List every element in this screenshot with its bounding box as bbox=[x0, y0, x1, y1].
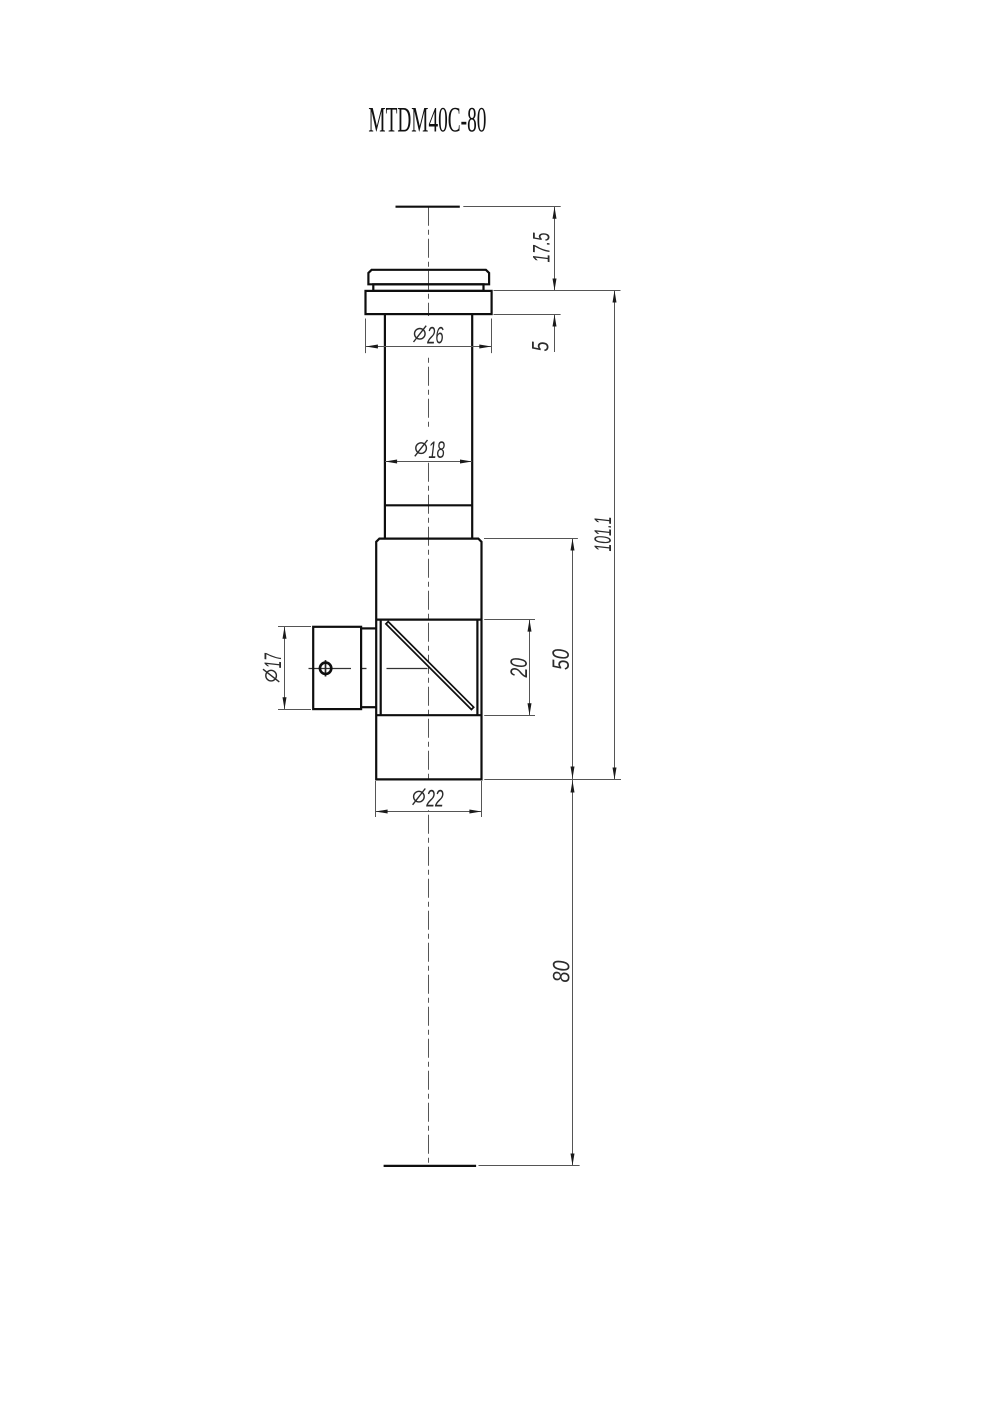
svg-text:17.5: 17.5 bbox=[529, 232, 556, 262]
svg-text:22: 22 bbox=[426, 786, 444, 813]
svg-text:26: 26 bbox=[426, 323, 443, 350]
svg-text:17: 17 bbox=[260, 653, 287, 669]
svg-text:80: 80 bbox=[549, 960, 576, 982]
svg-text:5: 5 bbox=[528, 341, 555, 351]
svg-text:20: 20 bbox=[506, 658, 533, 678]
svg-text:101.1: 101.1 bbox=[590, 517, 617, 552]
svg-text:50: 50 bbox=[548, 649, 575, 670]
svg-text:18: 18 bbox=[428, 437, 445, 464]
svg-text:MTDM40C-80: MTDM40C-80 bbox=[368, 100, 486, 140]
